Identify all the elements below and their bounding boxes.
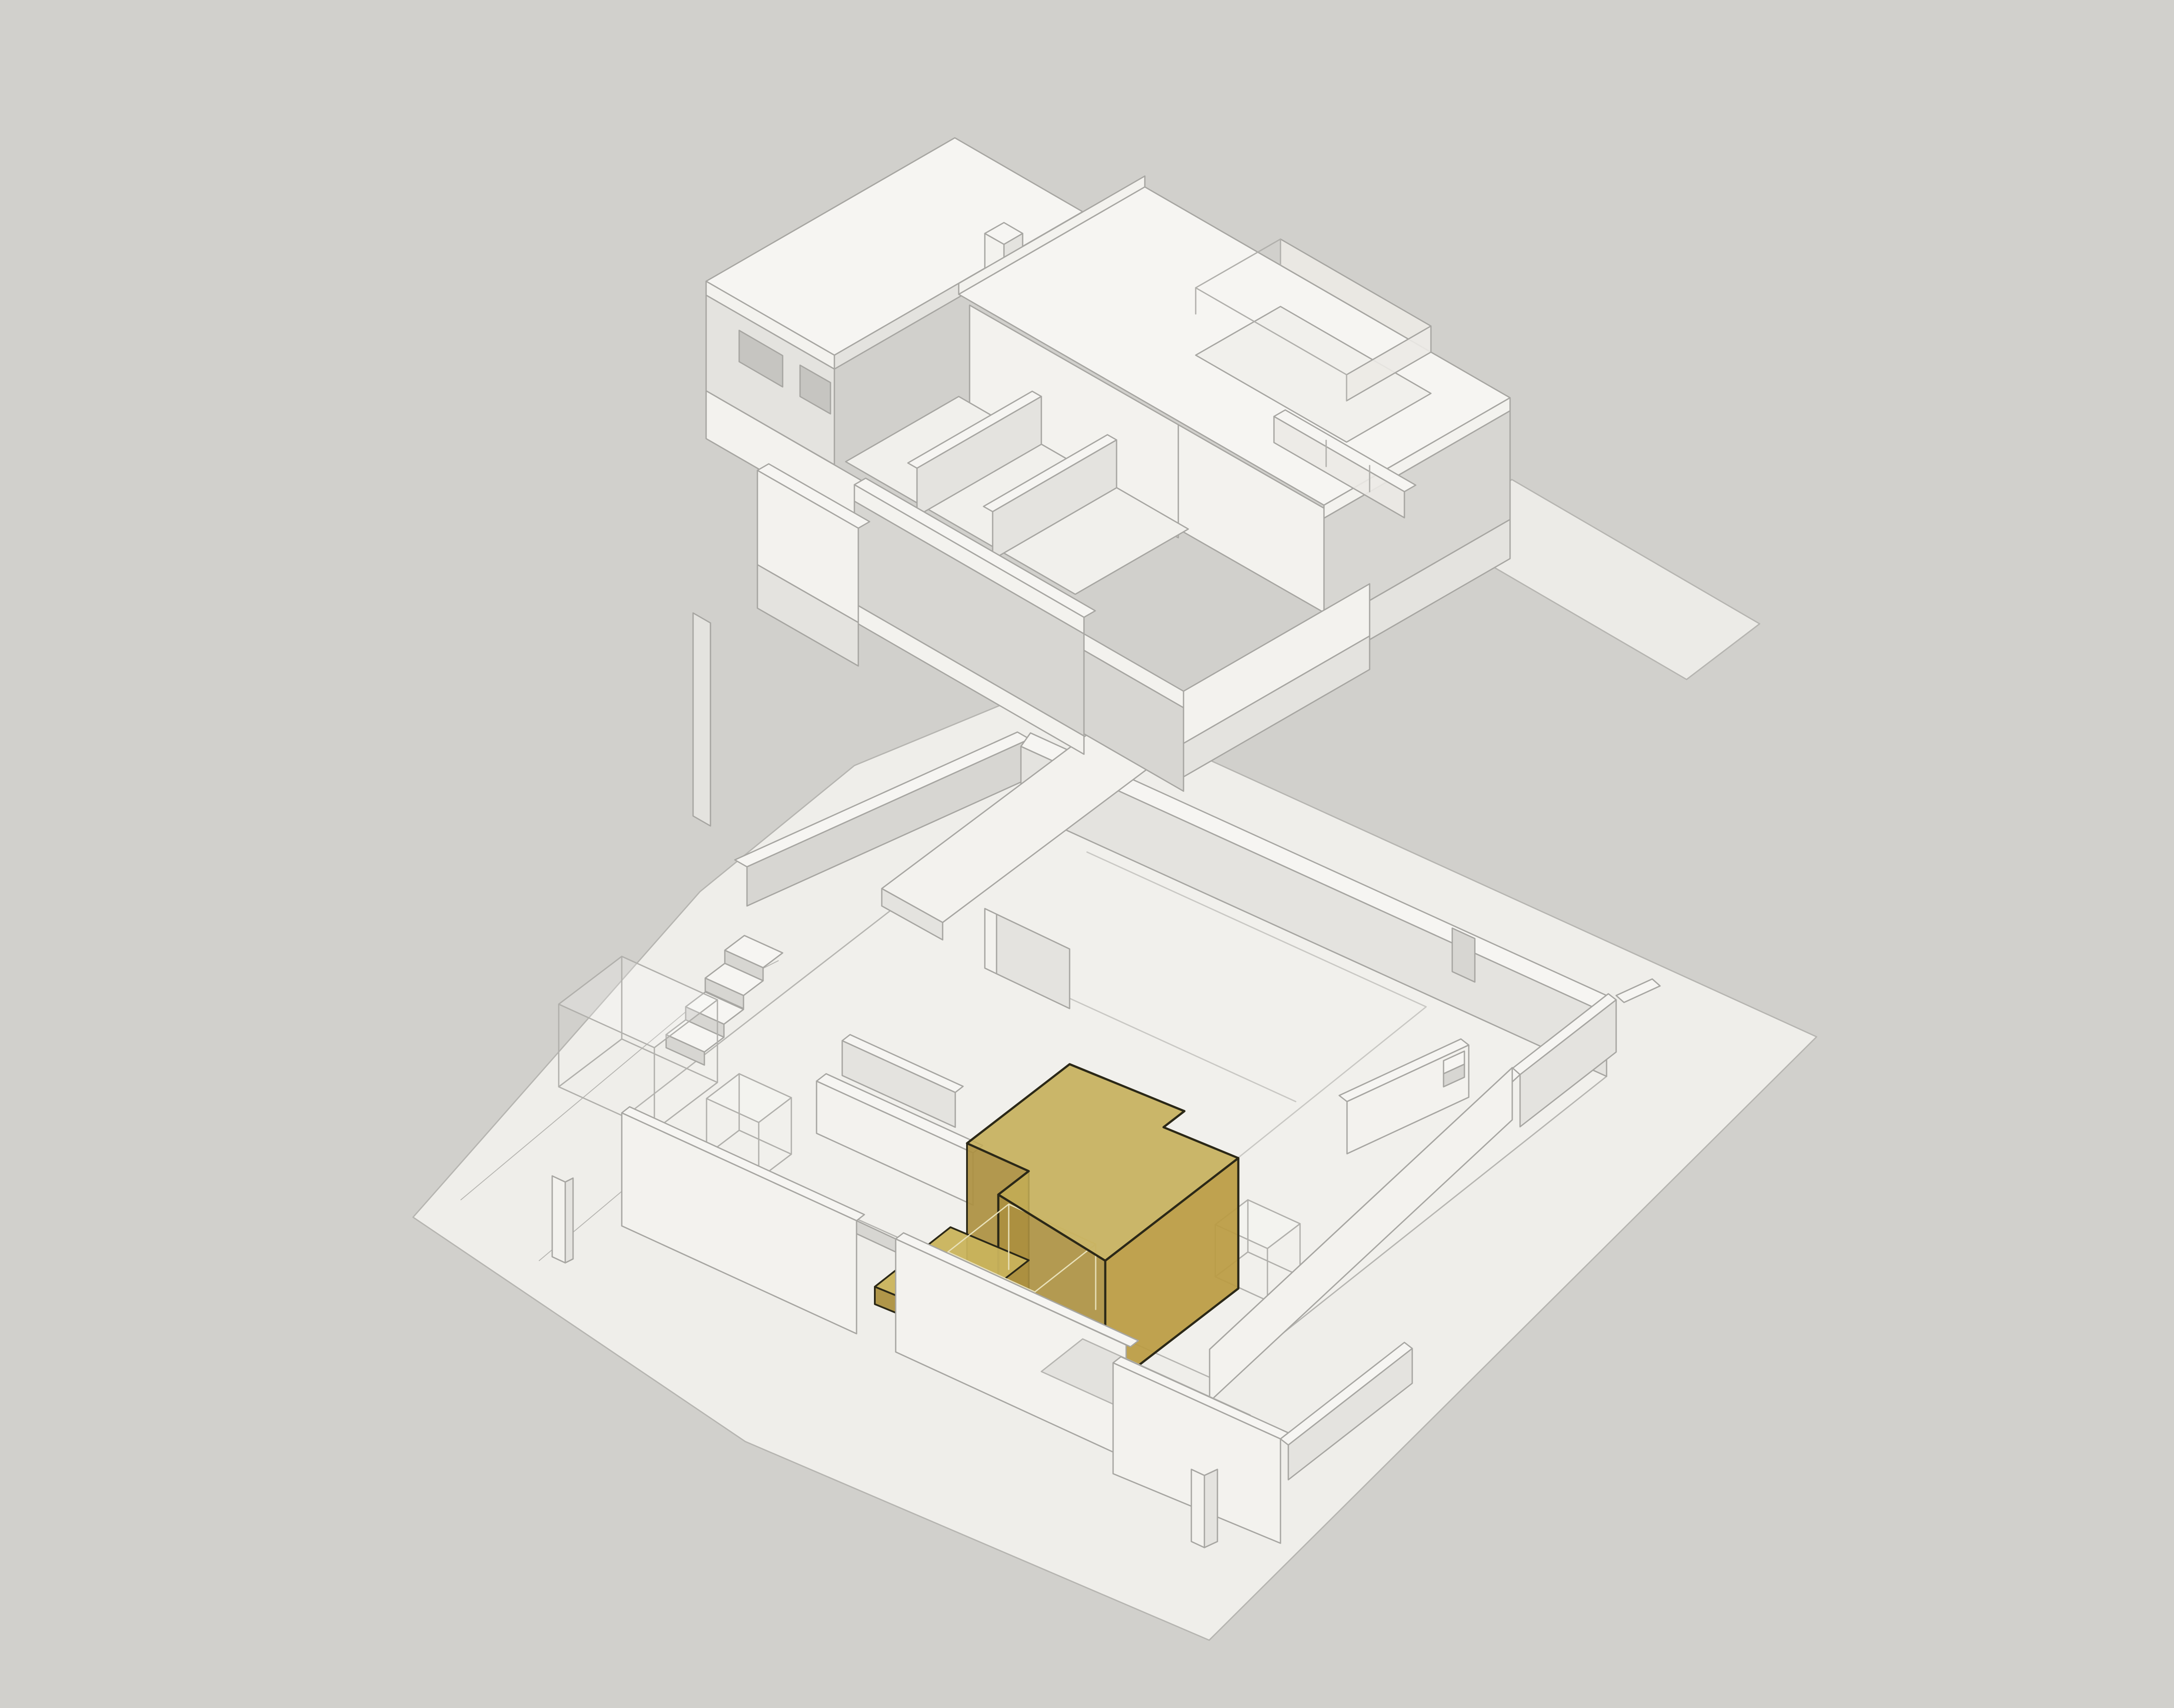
enclosure-panel-side — [1204, 1469, 1217, 1548]
walkway-stub-wall-face — [985, 909, 997, 974]
left-corner-drop-edge — [693, 613, 710, 826]
exploded-axonometric-view — [0, 0, 2174, 1708]
freestanding-panel-left-face — [552, 1176, 565, 1263]
diagram-canvas — [0, 0, 2174, 1708]
freestanding-panel-left-side — [565, 1178, 573, 1263]
enclosure-panel-face — [1191, 1469, 1204, 1548]
